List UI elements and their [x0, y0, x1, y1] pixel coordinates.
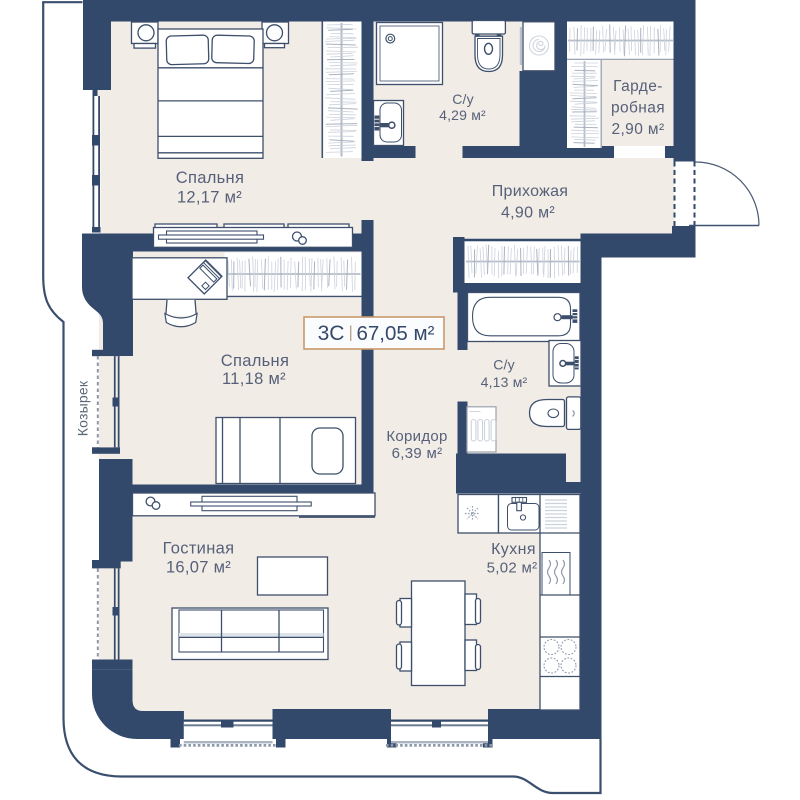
svg-text:Козырек: Козырек	[75, 380, 91, 436]
svg-text:16,07 м²: 16,07 м²	[166, 559, 231, 577]
svg-text:2,90 м²: 2,90 м²	[611, 121, 664, 138]
svg-text:Гостиная: Гостиная	[163, 540, 235, 558]
svg-text:робная: робная	[611, 100, 665, 117]
svg-text:12,17 м²: 12,17 м²	[177, 189, 242, 207]
svg-text:Коридор: Коридор	[386, 428, 447, 445]
svg-text:Спальня: Спальня	[176, 169, 244, 187]
svg-text:3С: 3С	[318, 322, 345, 345]
svg-text:11,18 м²: 11,18 м²	[222, 370, 286, 388]
svg-text:Гарде-: Гарде-	[613, 78, 663, 95]
svg-text:Прихожая: Прихожая	[492, 183, 569, 200]
svg-text:67,05 м²: 67,05 м²	[357, 322, 435, 345]
svg-text:С/у: С/у	[493, 357, 515, 373]
svg-text:С/у: С/у	[452, 91, 474, 107]
svg-text:Кухня: Кухня	[491, 541, 536, 558]
svg-text:4,13 м²: 4,13 м²	[481, 374, 528, 390]
svg-text:4,90 м²: 4,90 м²	[501, 205, 555, 222]
svg-text:4,29 м²: 4,29 м²	[439, 107, 486, 123]
svg-text:5,02 м²: 5,02 м²	[487, 560, 538, 577]
svg-text:6,39 м²: 6,39 м²	[392, 445, 443, 462]
svg-text:Спальня: Спальня	[221, 352, 289, 370]
